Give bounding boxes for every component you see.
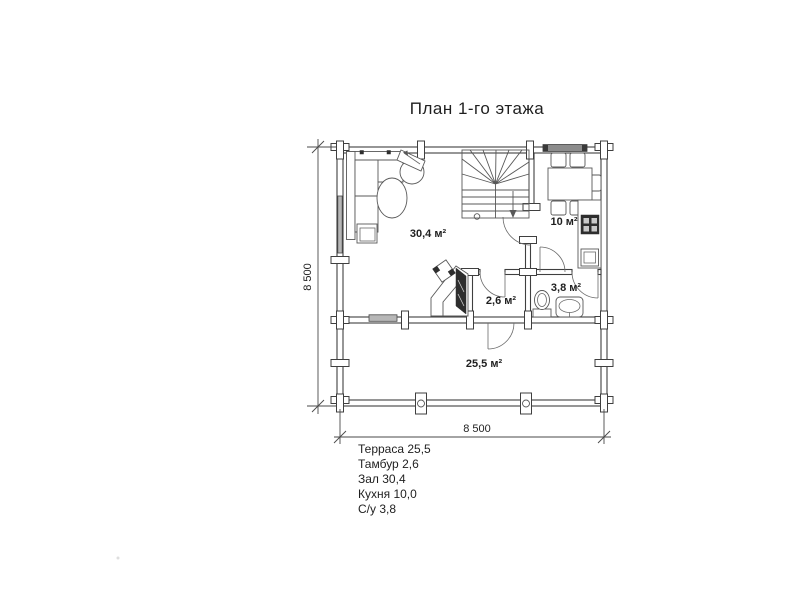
wall-bathroom-top: [505, 270, 572, 275]
log-joint: [601, 141, 608, 159]
kitchen-counter: [578, 200, 601, 268]
legend-item-kitchen: Кухня 10,0: [358, 487, 417, 501]
sofa-back-left: [347, 152, 356, 240]
floor-plan-page: План 1-го этажа: [0, 0, 800, 600]
stove-burner: [584, 226, 590, 232]
wall-kitchen: [529, 153, 534, 207]
log-joint: [402, 311, 409, 329]
log-joint: [601, 311, 608, 329]
log-joint: [418, 141, 425, 159]
stair-arrow-icon: [510, 210, 517, 218]
stair-start-marker: [474, 214, 480, 220]
log-joint: [520, 269, 537, 276]
room-label-kitchen: 10 м²: [550, 216, 577, 228]
window-kitchen-end: [543, 145, 548, 152]
wall-right: [601, 147, 607, 406]
washbasin: [556, 297, 583, 317]
room-label-tambour: 2,6 м²: [486, 295, 516, 307]
window-left-wall: [338, 196, 342, 253]
wall-bathroom-top-right: [598, 270, 601, 275]
log-joint: [331, 360, 349, 367]
page-title: План 1-го этажа: [410, 99, 545, 118]
stove-burner: [584, 218, 590, 224]
dimension-bottom: 8 500: [334, 409, 611, 444]
log-joint: [595, 360, 613, 367]
room-label-bathroom: 3,8 м²: [551, 282, 581, 294]
window-kitchen-end: [582, 145, 587, 152]
log-joint: [525, 311, 532, 329]
legend-item-wc: С/у 3,8: [358, 502, 396, 516]
legend-item-tambour: Тамбур 2,6: [358, 457, 419, 471]
floor-plan-drawing: План 1-го этажа: [0, 0, 800, 600]
coffee-table: [377, 178, 407, 218]
dim-width-label: 8 500: [463, 423, 491, 435]
door-arc-tambour: [480, 272, 505, 297]
room-label-terrace: 25,5 м²: [466, 358, 503, 370]
toilet: [533, 291, 551, 318]
log-joint: [331, 257, 349, 264]
wall-terrace-bottom: [337, 400, 607, 406]
stove-burner: [592, 226, 598, 232]
toilet-tank: [533, 309, 551, 317]
stair-winders: [462, 150, 529, 184]
window-kitchen: [543, 145, 587, 152]
room-label-zal: 30,4 м²: [410, 228, 447, 240]
log-joint: [520, 237, 537, 244]
dimension-left: 8 500: [302, 139, 336, 414]
dim-height-label: 8 500: [302, 263, 314, 291]
log-joint: [337, 141, 344, 159]
fireplace-firebox: [456, 268, 466, 314]
door-arc-kitchen: [540, 247, 565, 272]
window-living-terrace: [369, 315, 397, 322]
wall-corridor: [526, 237, 531, 317]
dining-chair: [551, 153, 566, 167]
artifact-dot: [117, 557, 120, 560]
sofa-stud: [387, 151, 391, 155]
log-joint: [523, 204, 540, 211]
dining-chair: [551, 201, 566, 215]
legend-item-terrace: Терраса 25,5: [358, 442, 431, 456]
wall-left: [337, 147, 343, 406]
dining-table: [548, 168, 592, 200]
legend-item-zal: Зал 30,4: [358, 472, 406, 486]
dining-chair: [570, 153, 585, 167]
door-arc-terrace: [488, 323, 514, 349]
legend: Терраса 25,5 Тамбур 2,6 Зал 30,4 Кухня 1…: [358, 442, 431, 516]
stove-burner: [592, 218, 598, 224]
log-joint: [337, 311, 344, 329]
sofa-stud: [360, 151, 364, 155]
staircase: [462, 150, 529, 219]
